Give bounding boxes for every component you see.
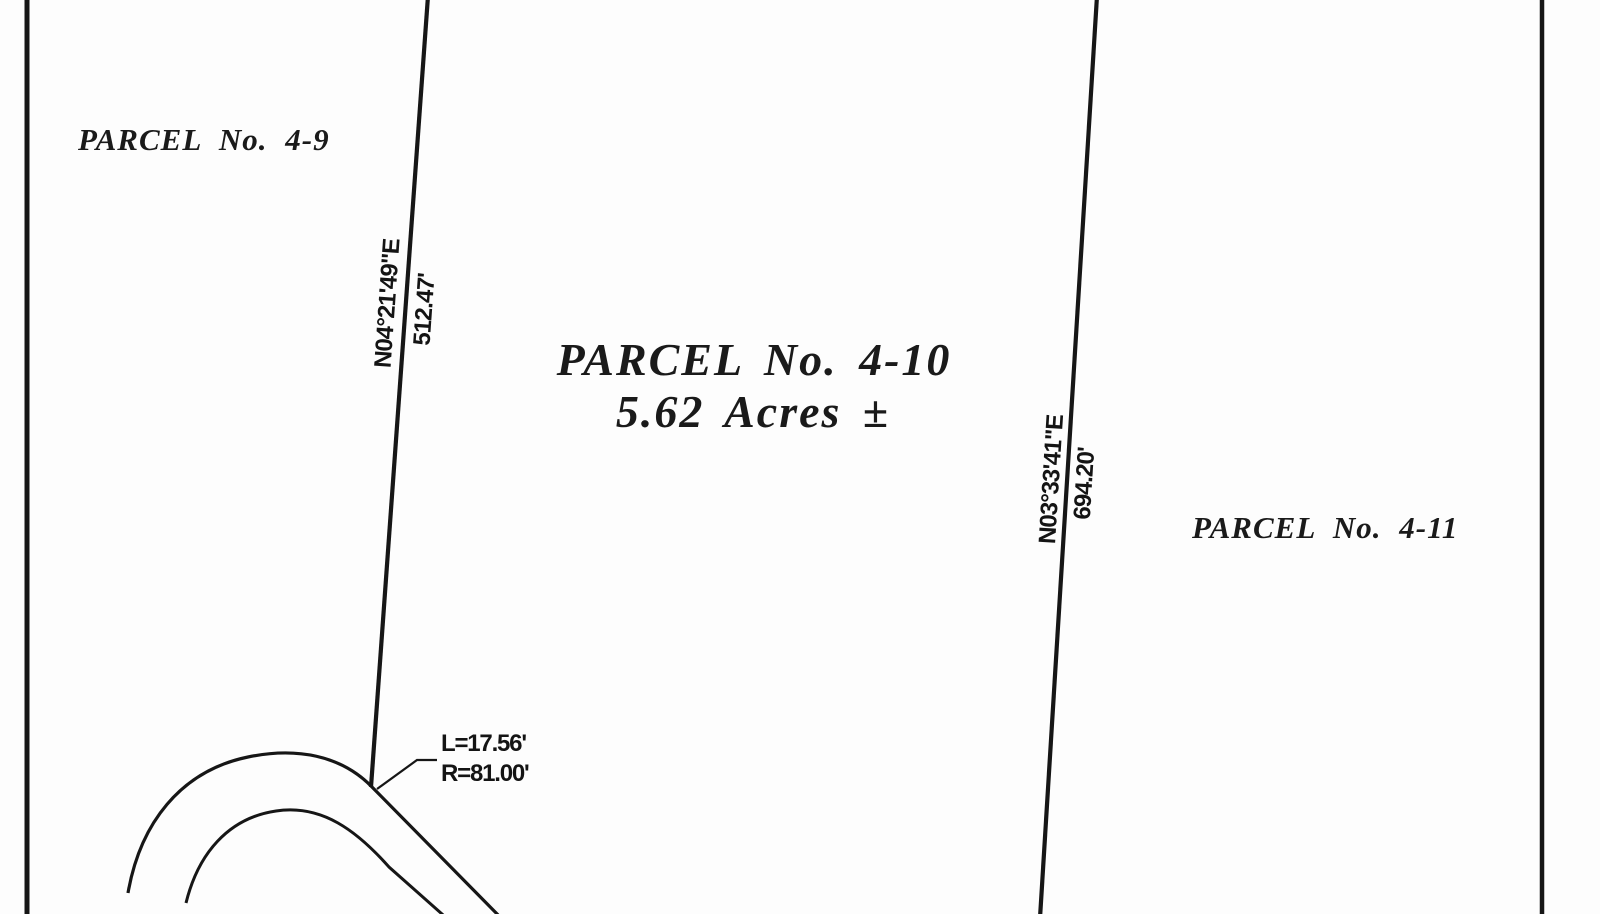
boundary-left-bearing: N04°21'49"E: [370, 237, 406, 369]
boundary-left-distance: 512.47': [409, 272, 441, 346]
curve-leader-line: [377, 760, 437, 789]
parcel-4-11-label: PARCEL No. 4-11: [1191, 510, 1458, 545]
plat-sheet: PARCEL No. 4-9 PARCEL No. 4-10 5.62 Acre…: [0, 0, 1600, 914]
curve-radius-label: R=81.00': [441, 760, 529, 787]
plat-drawing: PARCEL No. 4-9 PARCEL No. 4-10 5.62 Acre…: [0, 0, 1600, 914]
parcel-4-10-area: 5.62 Acres ±: [616, 386, 890, 437]
parcel-4-9-label: PARCEL No. 4-9: [77, 122, 330, 157]
boundary-line-left: [371, 0, 428, 787]
parcel-4-10-label: PARCEL No. 4-10: [556, 334, 952, 385]
curve-length-label: L=17.56': [441, 730, 526, 757]
boundary-right-distance: 694.20': [1069, 446, 1100, 520]
